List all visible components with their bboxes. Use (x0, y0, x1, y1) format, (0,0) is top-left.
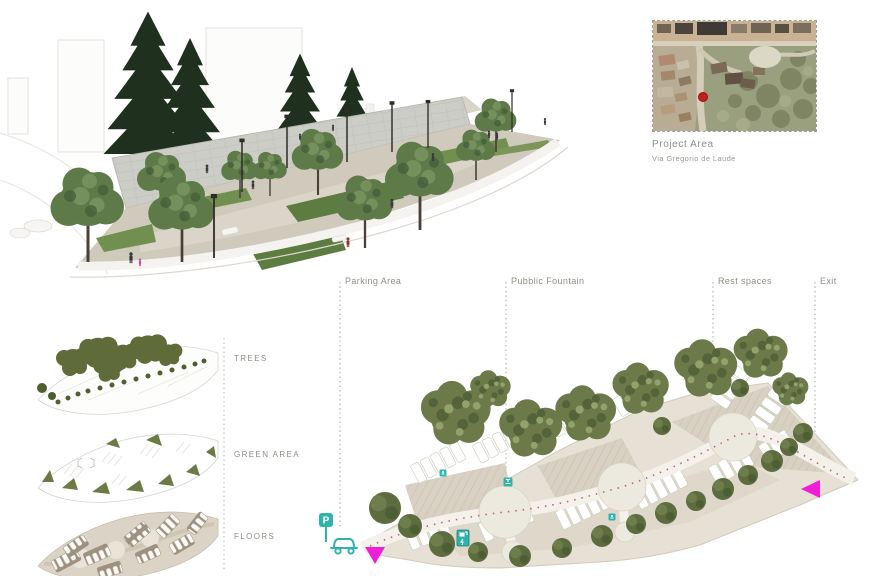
map-roof-strip (653, 21, 816, 46)
layer-green-area (38, 434, 218, 502)
presentation-board: Project Area Via Gregorio de Laude (0, 0, 872, 576)
layers-diagram-image (28, 332, 228, 576)
drinking-fountain-icon (609, 514, 616, 521)
label-parking-area: Parking Area (345, 276, 401, 286)
layer-trees (37, 334, 218, 414)
label-public-fountain: Pubblic Fountain (511, 276, 584, 286)
map-buildings-left (653, 46, 703, 131)
drinking-fountain-icon (440, 470, 447, 477)
perspective-render-image (0, 0, 660, 300)
site-plan: P Parking Area Pubblic Fountain Rest spa… (310, 270, 872, 576)
exploded-layers-diagram: TREES GREEN AREA FLOORS (28, 332, 308, 576)
project-area-title: Project Area (652, 139, 822, 150)
map-clearing (749, 46, 781, 68)
perspective-render (0, 0, 660, 300)
svg-text:P: P (323, 516, 330, 527)
site-plan-image: P (310, 270, 872, 576)
map-image-frame (652, 20, 817, 132)
location-map-card: Project Area Via Gregorio de Laude (652, 20, 822, 163)
ev-charger-icon (457, 530, 469, 546)
label-rest-spaces: Rest spaces (718, 276, 772, 286)
location-dot-icon (699, 93, 708, 102)
label-exit: Exit (820, 276, 837, 286)
layer-label-green-area: GREEN AREA (234, 450, 300, 459)
parking-sign-icon: P (319, 513, 333, 542)
layer-floors (38, 511, 218, 576)
car-icon (331, 539, 357, 554)
layer-label-floors: FLOORS (234, 532, 275, 541)
public-fountain-icon (504, 478, 513, 487)
street-name-label: Via Gregorio de Laude (652, 154, 822, 163)
layer-label-trees: TREES (234, 354, 268, 363)
satellite-map-image (653, 21, 816, 131)
